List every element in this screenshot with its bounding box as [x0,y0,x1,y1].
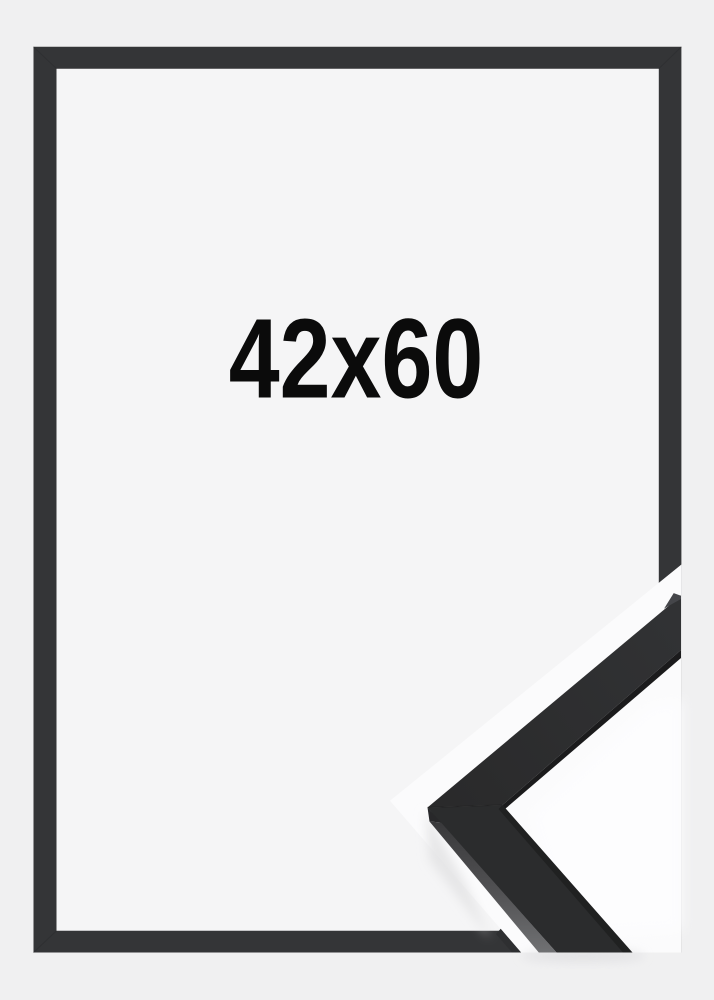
svg-text:42x60: 42x60 [229,295,483,421]
